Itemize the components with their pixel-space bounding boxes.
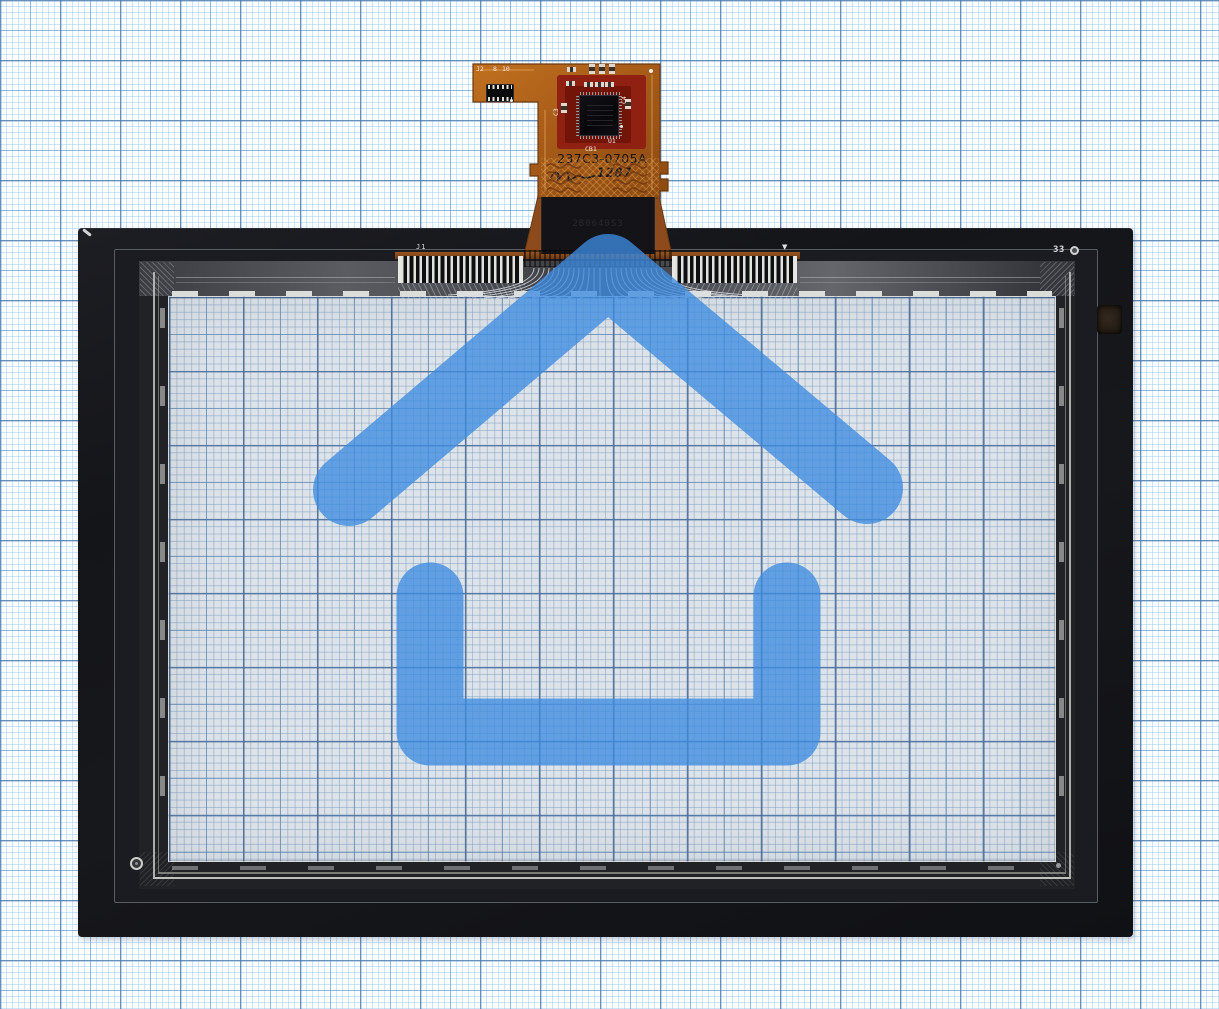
fpc-label-c4: C4 — [621, 96, 628, 104]
fiducial-dot — [649, 69, 653, 73]
passive-component — [595, 82, 604, 87]
serpentine-traces — [541, 158, 659, 198]
stiffener-serial: 2B0640S3 — [541, 219, 655, 229]
fpc-label-pin8: 8 — [493, 66, 497, 73]
capacitor-c3 — [561, 103, 567, 113]
fiducial-dot — [620, 125, 623, 128]
passive-component — [609, 64, 615, 74]
chip-marking-lines — [587, 105, 613, 127]
chip-pins-left — [576, 96, 579, 137]
passive-component — [567, 67, 576, 72]
chip-pins-top — [580, 92, 620, 95]
touch-controller-chip — [579, 95, 619, 136]
passive-component — [589, 64, 595, 74]
passive-component — [599, 64, 605, 74]
connector-pins-top — [488, 85, 512, 89]
fpc-label-pin10: 10 — [502, 66, 510, 73]
passive-component — [566, 81, 575, 86]
fpc-label-j2: J2 — [476, 66, 484, 73]
connector-pins-bottom — [488, 97, 512, 101]
fiducial-dot — [510, 99, 513, 102]
fpc-bond-strip — [524, 250, 672, 267]
fpc-label-u1: U1 — [608, 138, 616, 145]
passive-component — [605, 82, 614, 87]
graph-paper-background: J1 ▼ 33 — [0, 0, 1219, 1009]
passive-component — [584, 82, 593, 87]
fpc-label-c3: C3 — [553, 108, 560, 116]
